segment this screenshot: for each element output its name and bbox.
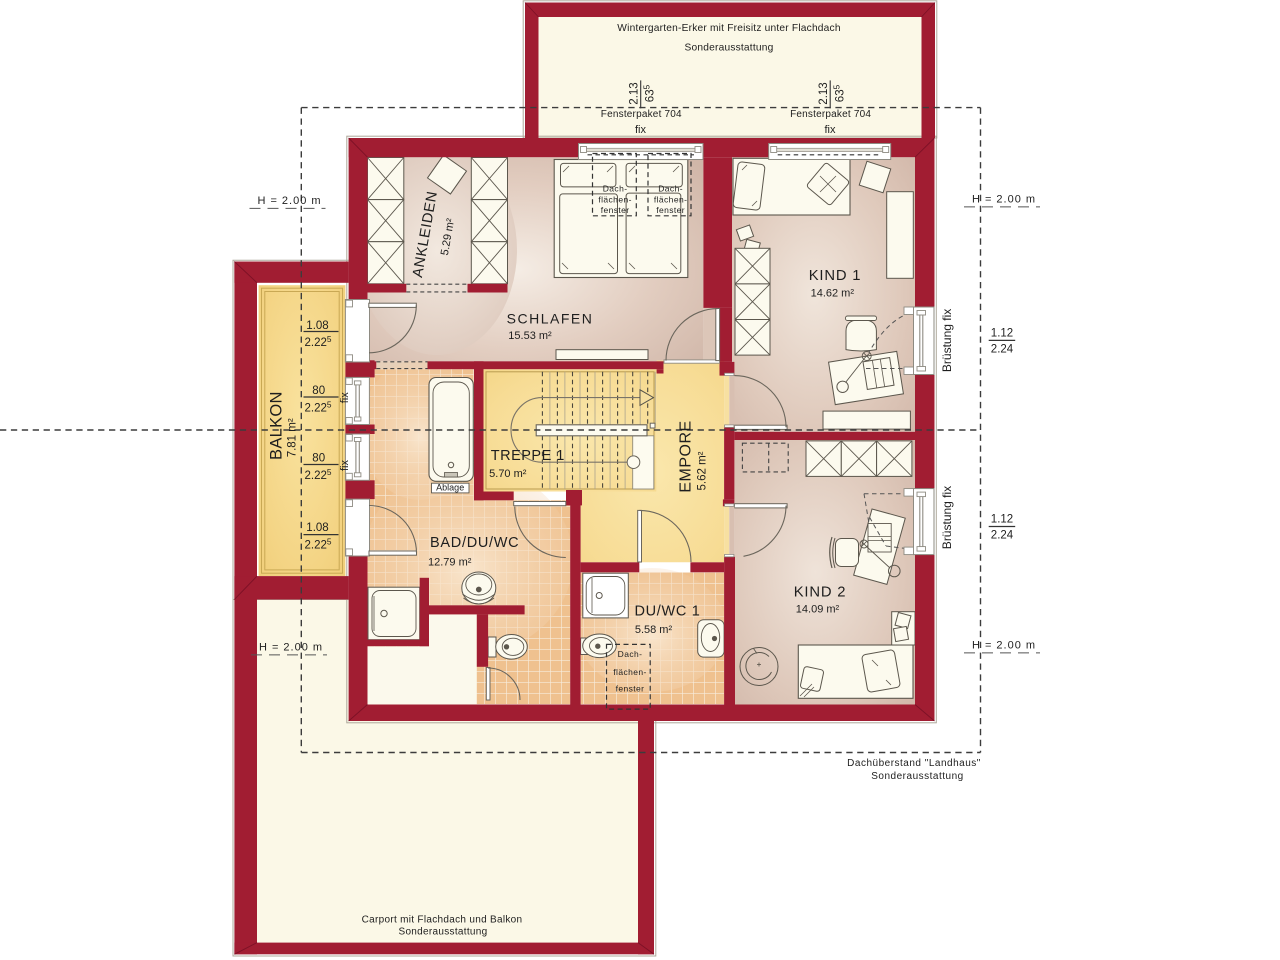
svg-text:EMPORE: EMPORE (677, 420, 694, 492)
svg-text:SCHLAFEN: SCHLAFEN (507, 310, 594, 326)
svg-text:KIND 1: KIND 1 (809, 268, 862, 284)
svg-text:Brüstung fix: Brüstung fix (940, 486, 954, 549)
svg-text:5.62 m²: 5.62 m² (697, 451, 709, 490)
svg-text:Sonderausstattung: Sonderausstattung (398, 927, 487, 938)
svg-text:KIND 2: KIND 2 (794, 585, 847, 601)
svg-text:80: 80 (312, 385, 325, 397)
svg-text:Dach-: Dach- (603, 184, 628, 194)
svg-text:Dach-: Dach- (658, 184, 683, 194)
svg-text:H = 2.00 m: H = 2.00 m (972, 640, 1036, 652)
svg-text:1.12: 1.12 (991, 327, 1013, 339)
svg-text:Dach-: Dach- (618, 649, 643, 659)
svg-text:Dachüberstand "Landhaus": Dachüberstand "Landhaus" (847, 758, 981, 769)
svg-text:fix: fix (825, 124, 837, 136)
svg-text:1.12: 1.12 (991, 514, 1013, 526)
svg-text:14.62 m²: 14.62 m² (811, 287, 855, 299)
svg-text:BAD/DU/WC: BAD/DU/WC (430, 535, 519, 551)
svg-text:H = 2.00 m: H = 2.00 m (257, 195, 321, 207)
svg-text:fenster: fenster (616, 684, 645, 694)
svg-text:BALKON: BALKON (268, 391, 286, 460)
svg-text:5.70 m²: 5.70 m² (489, 468, 527, 480)
svg-text:Sonderausstattung: Sonderausstattung (871, 771, 963, 782)
svg-text:1.08: 1.08 (306, 320, 328, 332)
svg-text:fenster: fenster (601, 205, 630, 215)
svg-text:flächen-: flächen- (613, 667, 646, 677)
svg-text:2.24: 2.24 (991, 529, 1014, 541)
svg-text:12.79 m²: 12.79 m² (428, 557, 472, 569)
svg-text:fix: fix (339, 392, 351, 404)
svg-text:fenster: fenster (656, 205, 685, 215)
svg-text:Ablage: Ablage (436, 483, 464, 493)
svg-text:15.53 m²: 15.53 m² (508, 330, 552, 342)
svg-text:14.09 m²: 14.09 m² (796, 604, 840, 616)
svg-text:flächen-: flächen- (598, 194, 631, 204)
svg-text:Sonderausstattung: Sonderausstattung (685, 43, 774, 54)
svg-text:H = 2.00 m: H = 2.00 m (972, 194, 1036, 206)
svg-text:Fensterpaket 704: Fensterpaket 704 (601, 109, 682, 120)
svg-text:1.08: 1.08 (306, 522, 328, 534)
svg-text:Fensterpaket 704: Fensterpaket 704 (790, 109, 871, 120)
svg-text:DU/WC 1: DU/WC 1 (634, 604, 700, 620)
svg-text:Brüstung fix: Brüstung fix (940, 309, 954, 372)
svg-text:flächen-: flächen- (654, 194, 687, 204)
svg-text:H = 2.00 m: H = 2.00 m (259, 642, 323, 654)
svg-text:7.81 m²: 7.81 m² (287, 418, 299, 457)
svg-text:2.13: 2.13 (629, 82, 641, 104)
svg-text:5.58 m²: 5.58 m² (635, 624, 673, 636)
svg-text:fix: fix (635, 124, 647, 136)
svg-text:2.13: 2.13 (818, 82, 830, 104)
svg-text:Carport mit Flachdach und Balk: Carport mit Flachdach und Balkon (362, 915, 523, 926)
svg-text:fix: fix (339, 460, 351, 472)
svg-text:80: 80 (312, 453, 325, 465)
svg-text:TREPPE 1: TREPPE 1 (491, 448, 565, 464)
svg-text:Wintergarten-Erker mit Freisit: Wintergarten-Erker mit Freisitz unter Fl… (617, 23, 840, 34)
svg-text:2.24: 2.24 (991, 343, 1014, 355)
